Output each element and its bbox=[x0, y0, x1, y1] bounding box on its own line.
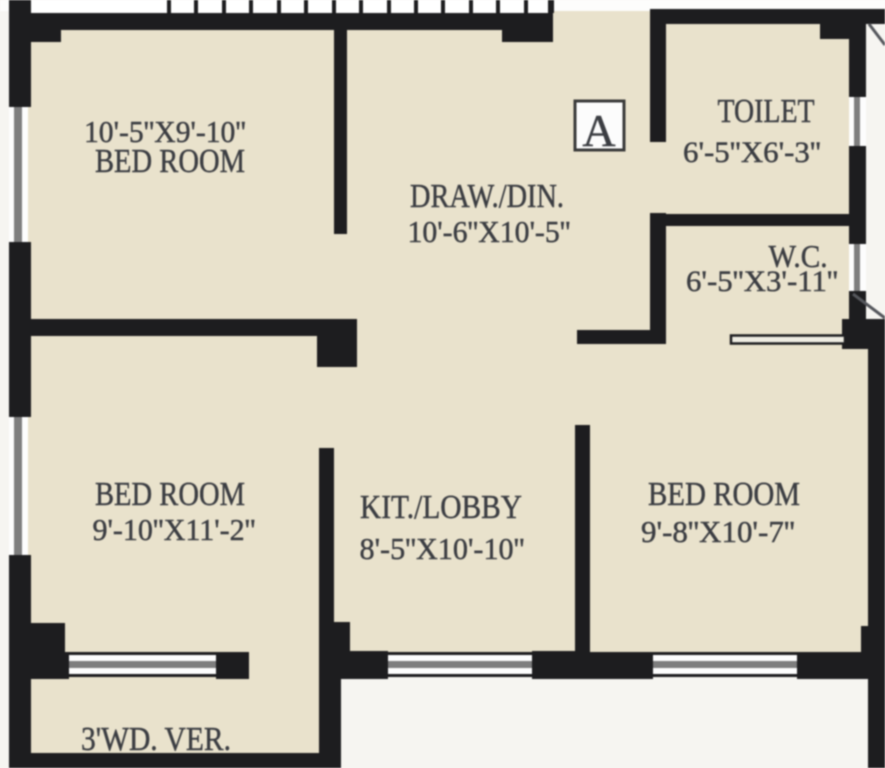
svg-text:10'-6''X10'-5'': 10'-6''X10'-5'' bbox=[408, 214, 571, 249]
svg-text:TOILET: TOILET bbox=[718, 93, 815, 130]
svg-text:6'-5''X6'-3'': 6'-5''X6'-3'' bbox=[683, 136, 821, 169]
svg-text:DRAW./DIN.: DRAW./DIN. bbox=[410, 178, 564, 215]
svg-text:A: A bbox=[582, 105, 615, 156]
svg-text:8'-5''X10'-10'': 8'-5''X10'-10'' bbox=[360, 531, 525, 566]
svg-text:9'-8''X10'-7'': 9'-8''X10'-7'' bbox=[641, 514, 795, 549]
svg-text:BED ROOM: BED ROOM bbox=[95, 143, 245, 180]
svg-text:3'WD. VER.: 3'WD. VER. bbox=[81, 721, 231, 758]
svg-text:6'-5''X3'-11'': 6'-5''X3'-11'' bbox=[686, 265, 838, 298]
svg-text:9'-10''X11'-2'': 9'-10''X11'-2'' bbox=[93, 512, 256, 547]
svg-text:BED ROOM: BED ROOM bbox=[648, 476, 800, 513]
svg-text:KIT./LOBBY: KIT./LOBBY bbox=[360, 489, 522, 526]
svg-text:BED ROOM: BED ROOM bbox=[95, 476, 245, 513]
